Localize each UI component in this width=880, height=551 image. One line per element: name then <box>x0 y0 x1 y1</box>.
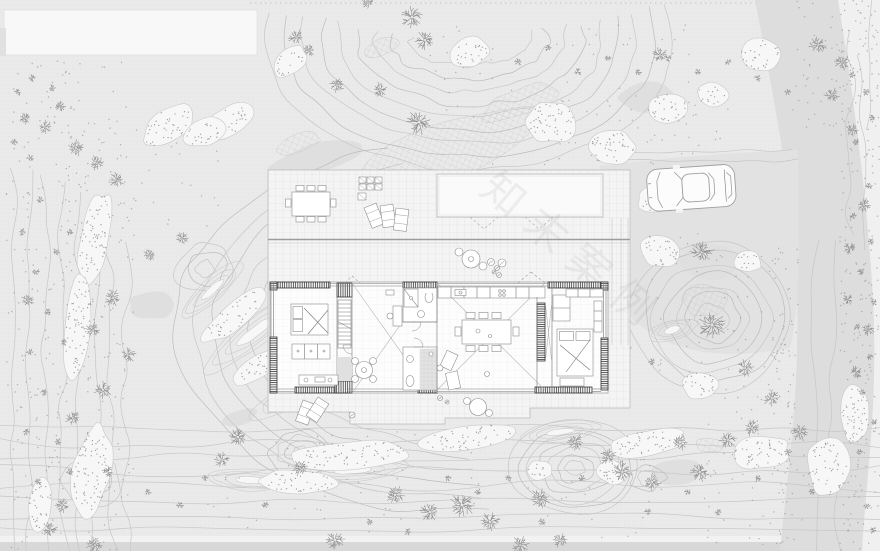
furniture-round <box>503 290 506 293</box>
edge-tab <box>0 28 6 56</box>
tiled-floor <box>420 349 436 389</box>
potted-plant <box>349 412 355 418</box>
furniture <box>576 332 590 341</box>
fixture <box>425 292 433 303</box>
furniture-round <box>297 350 299 352</box>
floor-patch <box>673 165 680 169</box>
wall-hatch <box>535 387 592 393</box>
terrain-shade-patch <box>130 291 174 318</box>
furniture <box>455 327 461 336</box>
storage-crate <box>358 193 366 200</box>
storage-crate <box>367 184 374 190</box>
house-layer <box>270 272 608 393</box>
furniture <box>492 346 501 352</box>
storage-crate <box>359 184 366 190</box>
potted-plant <box>488 259 495 266</box>
furniture-round <box>352 376 359 383</box>
furniture-round <box>459 291 462 294</box>
furniture-round <box>387 313 393 319</box>
furniture-round <box>464 398 471 405</box>
furniture <box>560 332 574 341</box>
site-plan-canvas: 知末案例 <box>0 0 880 551</box>
furniture <box>318 217 326 223</box>
furniture-round <box>470 399 487 416</box>
furniture <box>479 313 488 319</box>
furniture-round <box>499 294 502 297</box>
floor-patch <box>425 289 434 293</box>
furniture-round <box>485 372 490 377</box>
potted-plant <box>497 273 502 278</box>
bottom-road-strip <box>0 542 880 551</box>
furniture <box>293 307 303 319</box>
wall-hatch <box>337 283 352 297</box>
furniture-round <box>304 378 308 382</box>
wall-hatch <box>403 282 437 288</box>
neighbour-pad <box>4 10 257 55</box>
floor-patch <box>676 209 683 213</box>
furniture-round <box>479 262 487 270</box>
potted-plant <box>495 266 500 271</box>
furniture-round <box>429 352 433 356</box>
furniture-round <box>328 378 332 382</box>
vegetation-patch <box>735 436 789 469</box>
furniture <box>466 346 475 352</box>
furniture-round <box>352 358 359 365</box>
furniture-round <box>370 376 377 383</box>
furniture-round <box>469 257 474 262</box>
furniture <box>296 217 304 223</box>
furniture <box>466 313 475 319</box>
sun-lounger <box>380 204 396 228</box>
furniture <box>513 327 519 336</box>
furniture <box>386 290 394 295</box>
potted-plant <box>492 270 496 274</box>
wall-hatch <box>272 282 330 288</box>
furniture <box>492 313 501 319</box>
furniture <box>286 199 292 207</box>
furniture-round <box>323 350 325 352</box>
potted-plant <box>445 400 449 404</box>
furniture <box>393 306 402 326</box>
furniture <box>331 199 337 207</box>
furniture-round <box>310 350 312 352</box>
furniture-round <box>437 365 443 371</box>
furniture-round <box>489 335 492 338</box>
furniture-round <box>486 410 493 417</box>
furniture-round <box>362 368 367 373</box>
furniture <box>307 217 315 223</box>
car-body <box>681 173 710 203</box>
sun-lounger <box>393 208 409 231</box>
furniture <box>296 186 304 192</box>
furniture <box>560 378 584 386</box>
furniture-round <box>418 311 425 318</box>
furniture <box>318 186 326 192</box>
storage-crate <box>375 177 382 183</box>
parked-car <box>646 161 737 215</box>
storage-crate <box>375 184 382 190</box>
furniture-round <box>499 290 502 293</box>
furniture-round <box>503 294 506 297</box>
storage-crate <box>367 177 374 183</box>
storage-crate <box>359 177 366 183</box>
potted-plant <box>498 259 506 267</box>
furniture-round <box>455 248 463 256</box>
bottom-strip-light <box>0 536 880 542</box>
furniture <box>315 377 325 382</box>
staircase <box>338 300 351 348</box>
floor-patch <box>337 357 352 381</box>
furniture <box>293 320 303 332</box>
furniture-round <box>370 358 377 365</box>
vegetation-patch <box>841 385 869 443</box>
furniture-round <box>407 356 414 363</box>
furniture <box>292 192 330 216</box>
furniture-round <box>410 297 413 300</box>
furniture-round <box>476 329 480 333</box>
wall-hatch <box>270 337 277 393</box>
car <box>646 161 737 215</box>
wall-hatch <box>537 303 545 361</box>
furniture <box>307 186 315 192</box>
furniture <box>462 320 511 344</box>
wall-hatch <box>601 338 608 390</box>
fixture <box>406 376 414 387</box>
potted-plant <box>438 396 443 401</box>
vegetation-patch <box>734 251 761 272</box>
furniture <box>479 346 488 352</box>
site-plan: 知末案例 <box>0 0 880 551</box>
